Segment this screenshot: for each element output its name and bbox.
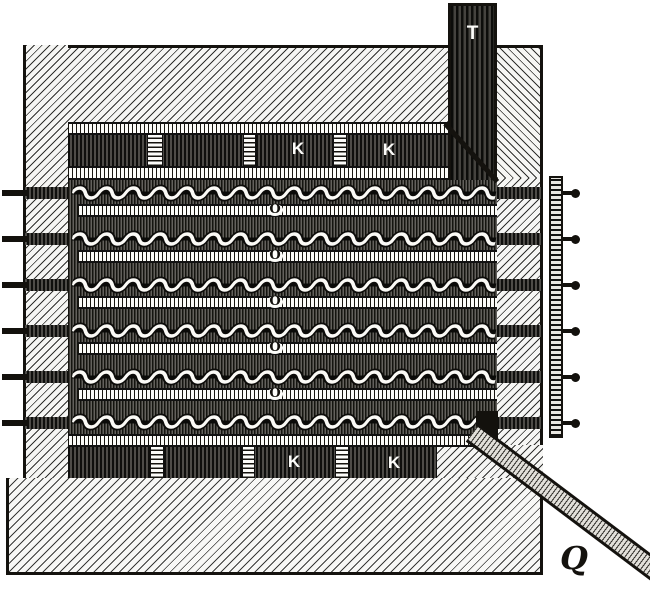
shaft-passage-right [497, 187, 543, 199]
shaft-end-left [2, 374, 29, 380]
shelf-label: O [267, 296, 283, 308]
shaft-knob [571, 281, 580, 290]
shaft-passage-right [497, 417, 543, 429]
shelf-label: O [267, 342, 283, 354]
foundation-base [6, 478, 543, 575]
grille-vent [333, 135, 347, 166]
shaft-end-left [2, 236, 29, 242]
lower-ribbed-bar [68, 434, 478, 447]
engraving-canvas: K K O O O O O K K [0, 0, 650, 594]
screw-conveyor [69, 364, 499, 390]
shaft-passage-left [23, 187, 68, 199]
upper-chamber-label: K [377, 141, 401, 158]
upper-ribbed-bar-bottom [68, 166, 448, 180]
screw-conveyor [69, 272, 499, 298]
lower-chamber-label: K [282, 453, 306, 470]
screw-conveyor [69, 180, 499, 206]
shaft-knob [571, 235, 580, 244]
shelf-bar [78, 388, 497, 401]
wall-top-right [497, 45, 543, 178]
shaft-passage-left [23, 371, 68, 383]
wall-right [497, 178, 543, 445]
shaft-passage-right [497, 233, 543, 245]
screw-conveyor [69, 318, 499, 344]
shaft-passage-right [497, 325, 543, 337]
wall-top [23, 45, 448, 122]
shaft-end-left [2, 282, 29, 288]
lower-chamber-label: K [382, 454, 406, 471]
shaft-passage-left [23, 233, 68, 245]
drive-rack-bar [549, 176, 563, 438]
shelf-label: O [267, 204, 283, 216]
shelf-bar [78, 204, 497, 217]
flue-label: T [448, 24, 497, 43]
shaft-passage-left [23, 279, 68, 291]
screw-conveyor [69, 409, 479, 435]
shaft-knob [571, 189, 580, 198]
upper-ribbed-bar-top [68, 122, 448, 135]
shelf-bar [78, 296, 497, 309]
shaft-knob [571, 373, 580, 382]
shelf-label: O [267, 250, 283, 262]
shelf-bar [78, 342, 497, 355]
shelf-label: O [267, 388, 283, 400]
shaft-passage-left [23, 325, 68, 337]
shaft-knob [571, 419, 580, 428]
grille-vent [335, 447, 349, 478]
screw-conveyor [69, 226, 499, 252]
grille-vent [242, 447, 255, 478]
shaft-end-left [2, 420, 29, 426]
shaft-passage-right [497, 371, 543, 383]
shaft-passage-right [497, 279, 543, 291]
shaft-passage-left [23, 417, 68, 429]
shaft-end-left [2, 190, 29, 196]
chute-label: Q [560, 542, 588, 574]
shaft-end-left [2, 328, 29, 334]
grille-vent [150, 447, 164, 478]
grille-vent [147, 135, 163, 166]
shaft-knob [571, 327, 580, 336]
grille-vent [243, 135, 256, 166]
wall-left [23, 45, 68, 478]
shelf-bar [78, 250, 497, 263]
upper-chamber-label: K [286, 140, 310, 157]
